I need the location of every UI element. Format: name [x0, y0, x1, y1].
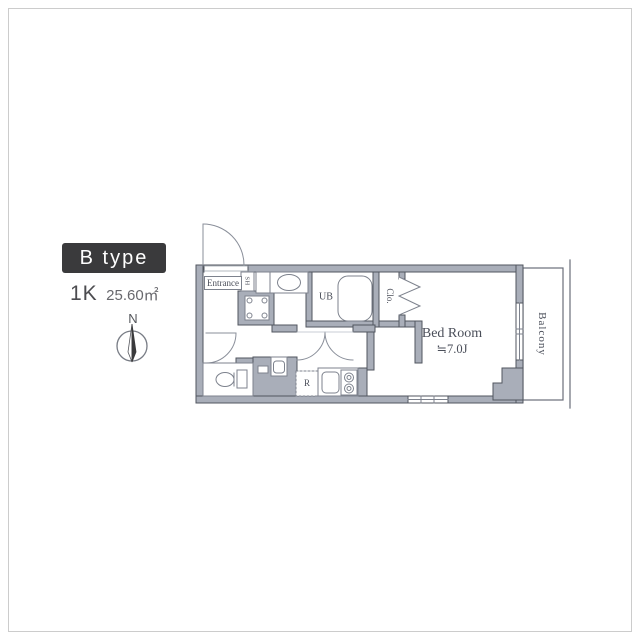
- unit-bath-label: UB: [319, 292, 333, 303]
- entrance-door-swing: [203, 224, 244, 265]
- vanity-sink-icon: [256, 272, 308, 293]
- toilet-room: [203, 363, 253, 396]
- floor-plan-page: { "legend": { "type_label": "B type", "l…: [0, 0, 640, 640]
- refrigerator-label: R: [304, 378, 310, 388]
- kitchen-unit: [318, 368, 358, 396]
- washer-pan-icon: [245, 296, 269, 320]
- bedroom-south-window: [408, 396, 448, 403]
- counter-box: [258, 366, 268, 373]
- mini-basin-icon: [271, 357, 287, 376]
- closet-label: Clo.: [385, 288, 395, 303]
- balcony-label: Balcony: [536, 312, 548, 356]
- balcony-sliding-window: [516, 303, 523, 360]
- bathtub-icon: [338, 276, 372, 321]
- bedroom-label: Bed Room: [422, 326, 482, 342]
- shoe-cabinet-label: SH: [244, 276, 251, 285]
- entrance-label: Entrance: [204, 276, 242, 290]
- bedroom-size-label: ≒7.0J: [437, 341, 468, 357]
- kitchen-sink-icon: [322, 372, 339, 393]
- stove-icon: [341, 370, 357, 395]
